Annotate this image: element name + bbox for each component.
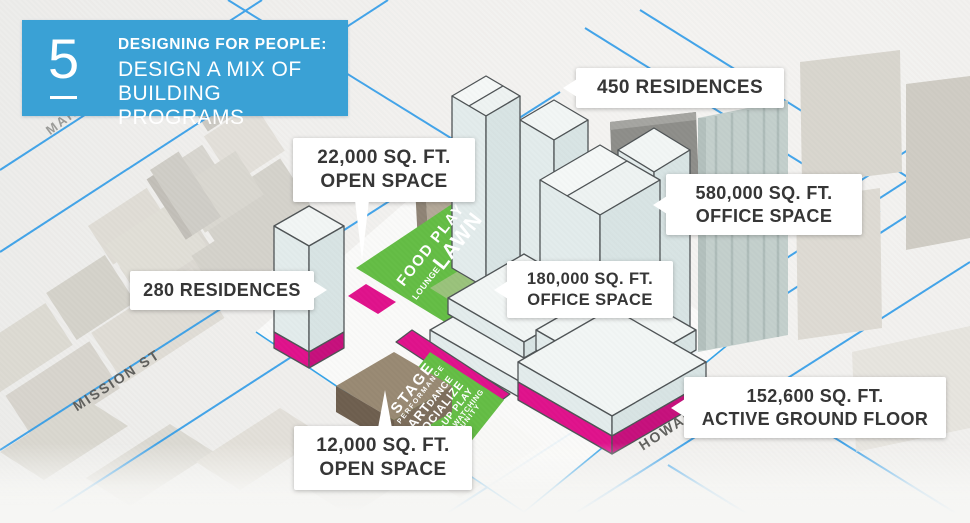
slide-title-line2: BUILDING PROGRAMS [118,82,348,130]
slide-kicker: DESIGNING FOR PEOPLE: [118,36,327,54]
callout-pointer-right [313,281,327,299]
callout-pointer-up [378,390,392,428]
callout-residences-450: 450 RESIDENCES [576,68,784,108]
callout-active-ground-152k: 152,600 SQ. FT. ACTIVE GROUND FLOOR [684,377,946,438]
callout-office-580k: 580,000 SQ. FT. OFFICE SPACE [666,174,862,235]
callout-line1: 580,000 SQ. FT. [678,182,850,205]
callout-office-180k: 180,000 SQ. FT. OFFICE SPACE [507,261,673,318]
callout-line2: OPEN SPACE [305,170,463,194]
infographic-canvas: MARKET ST MISSION ST HOWARD FOOD PLAY LO… [0,0,970,523]
slide-title-line1: DESIGN A MIX OF [118,58,302,82]
callout-line1: 280 RESIDENCES [142,279,302,302]
callout-line1: 450 RESIDENCES [588,76,772,100]
callout-pointer-left [671,399,685,417]
step-number-underline [50,96,77,99]
callout-pointer-left [563,79,577,97]
callout-line2: OFFICE SPACE [519,290,661,311]
callout-line2: OPEN SPACE [306,458,460,482]
slide-header: 5 DESIGNING FOR PEOPLE: DESIGN A MIX OF … [22,20,348,116]
callout-open-space-22k: 22,000 SQ. FT. OPEN SPACE [293,138,475,202]
callout-line1: 22,000 SQ. FT. [305,146,463,170]
callout-residences-280: 280 RESIDENCES [130,271,314,310]
callout-line2: ACTIVE GROUND FLOOR [696,408,934,431]
callout-pointer-down [355,200,369,260]
callout-line1: 12,000 SQ. FT. [306,434,460,458]
callout-line2: OFFICE SPACE [678,205,850,228]
callout-line1: 152,600 SQ. FT. [696,385,934,408]
callout-pointer-left [653,196,667,214]
callout-open-space-12k: 12,000 SQ. FT. OPEN SPACE [294,426,472,490]
callout-pointer-left [494,281,508,299]
callout-line1: 180,000 SQ. FT. [519,269,661,290]
step-number: 5 [48,26,79,91]
